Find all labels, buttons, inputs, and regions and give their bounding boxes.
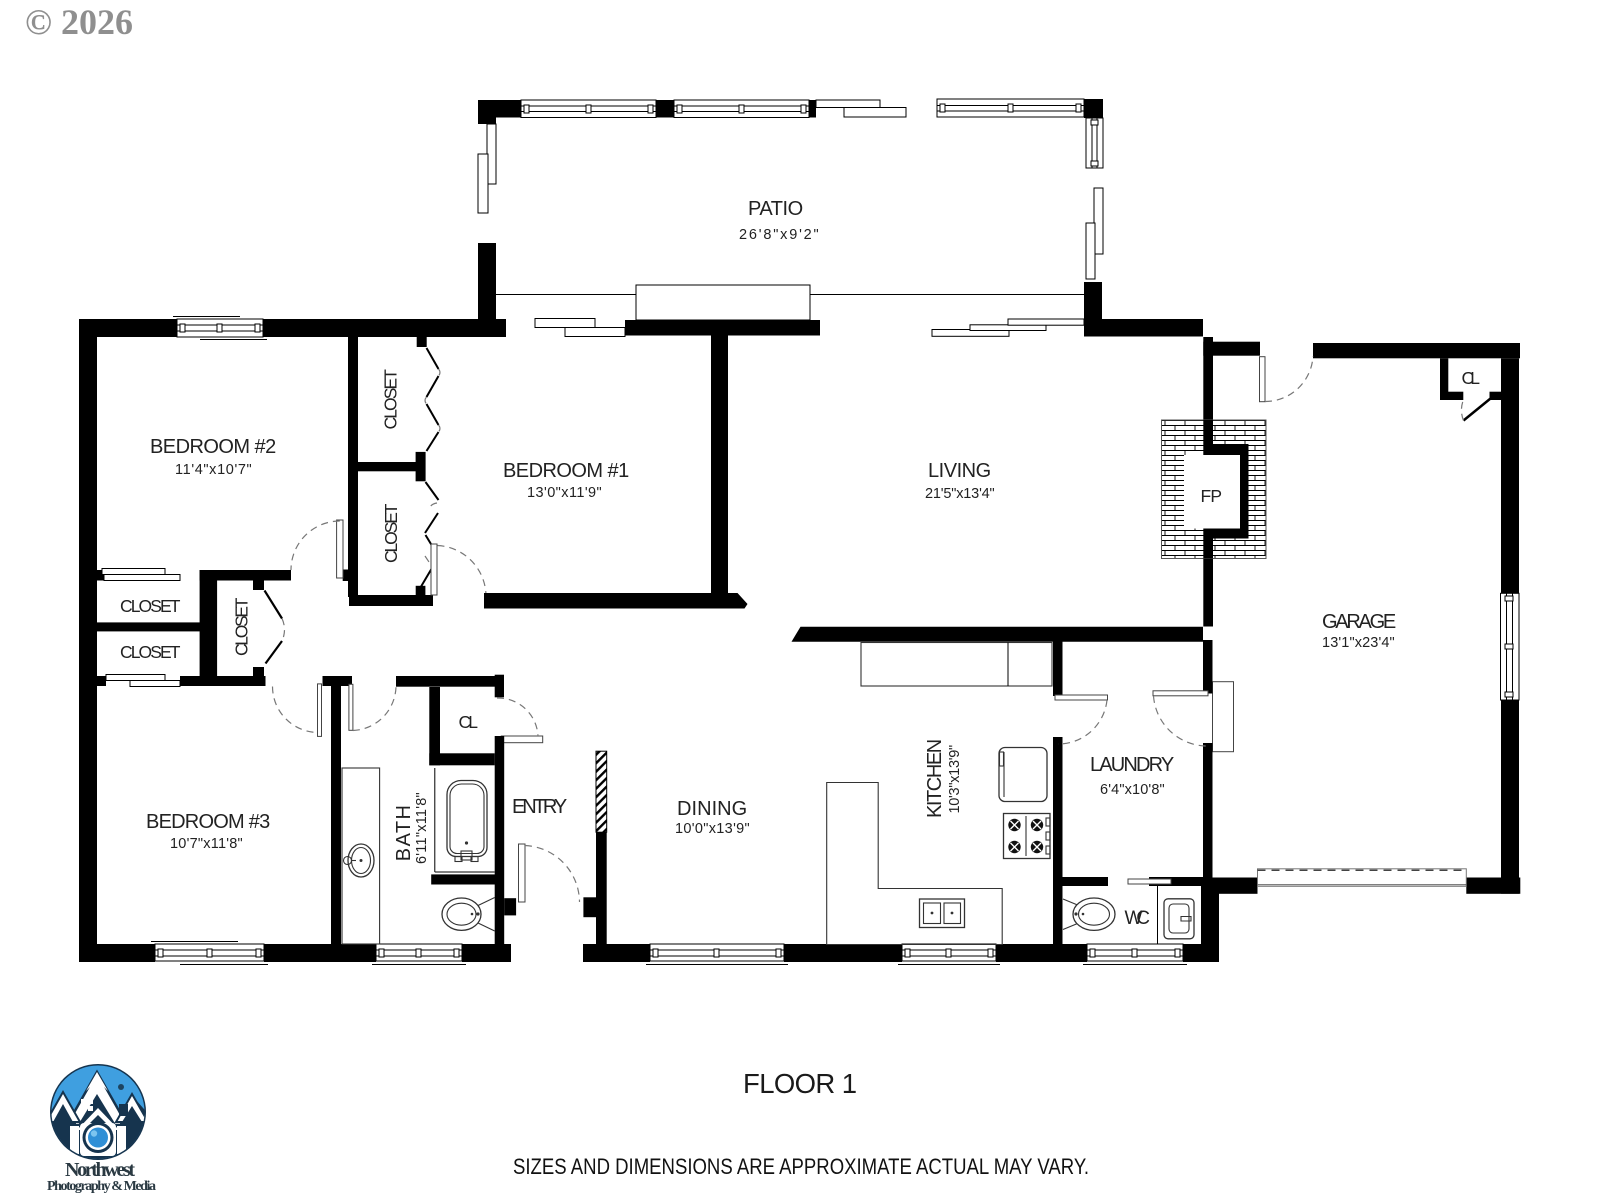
svg-text:CLOSET: CLOSET — [120, 596, 181, 616]
svg-text:BEDROOM #1: BEDROOM #1 — [503, 460, 630, 482]
svg-text:CLOSET: CLOSET — [381, 369, 401, 430]
svg-text:Photography & Media: Photography & Media — [47, 1179, 156, 1194]
svg-text:LIVING: LIVING — [928, 460, 992, 482]
svg-text:10'0"x13'9": 10'0"x13'9" — [675, 821, 750, 837]
svg-text:GARAGE: GARAGE — [1322, 611, 1397, 633]
svg-text:FP: FP — [1201, 486, 1223, 506]
svg-text:FLOOR 1: FLOOR 1 — [743, 1068, 857, 1099]
svg-text:13'1"x23'4": 13'1"x23'4" — [1322, 635, 1395, 651]
svg-text:LAUNDRY: LAUNDRY — [1090, 754, 1175, 776]
svg-text:WC: WC — [1125, 908, 1151, 929]
svg-text:ENTRY: ENTRY — [512, 796, 568, 818]
svg-text:KITCHEN: KITCHEN — [924, 738, 946, 818]
svg-text:DINING: DINING — [677, 798, 748, 820]
svg-text:10'3"x13'9": 10'3"x13'9" — [947, 745, 963, 814]
svg-text:CL: CL — [1462, 368, 1481, 388]
svg-text:BATH: BATH — [393, 804, 415, 861]
svg-text:6'11"x11'8": 6'11"x11'8" — [414, 792, 430, 864]
svg-text:Northwest: Northwest — [65, 1159, 135, 1181]
svg-text:CLOSET: CLOSET — [381, 503, 401, 563]
svg-text:CL: CL — [459, 712, 479, 732]
svg-text:6'4"x10'8": 6'4"x10'8" — [1100, 782, 1165, 798]
svg-text:10'7"x11'8": 10'7"x11'8" — [170, 836, 243, 852]
svg-text:PATIO: PATIO — [748, 198, 804, 220]
svg-text:CLOSET: CLOSET — [232, 597, 252, 656]
svg-text:21'5"x13'4": 21'5"x13'4" — [925, 486, 995, 502]
svg-text:SIZES AND DIMENSIONS ARE APPRO: SIZES AND DIMENSIONS ARE APPROXIMATE ACT… — [513, 1154, 1089, 1179]
svg-text:© 2026: © 2026 — [25, 2, 133, 42]
svg-text:CLOSET: CLOSET — [120, 642, 181, 662]
svg-text:BEDROOM #2: BEDROOM #2 — [150, 436, 277, 458]
svg-text:BEDROOM #3: BEDROOM #3 — [146, 811, 271, 833]
svg-text:11'4"x10'7": 11'4"x10'7" — [175, 462, 252, 478]
svg-text:13'0"x11'9": 13'0"x11'9" — [527, 485, 602, 501]
